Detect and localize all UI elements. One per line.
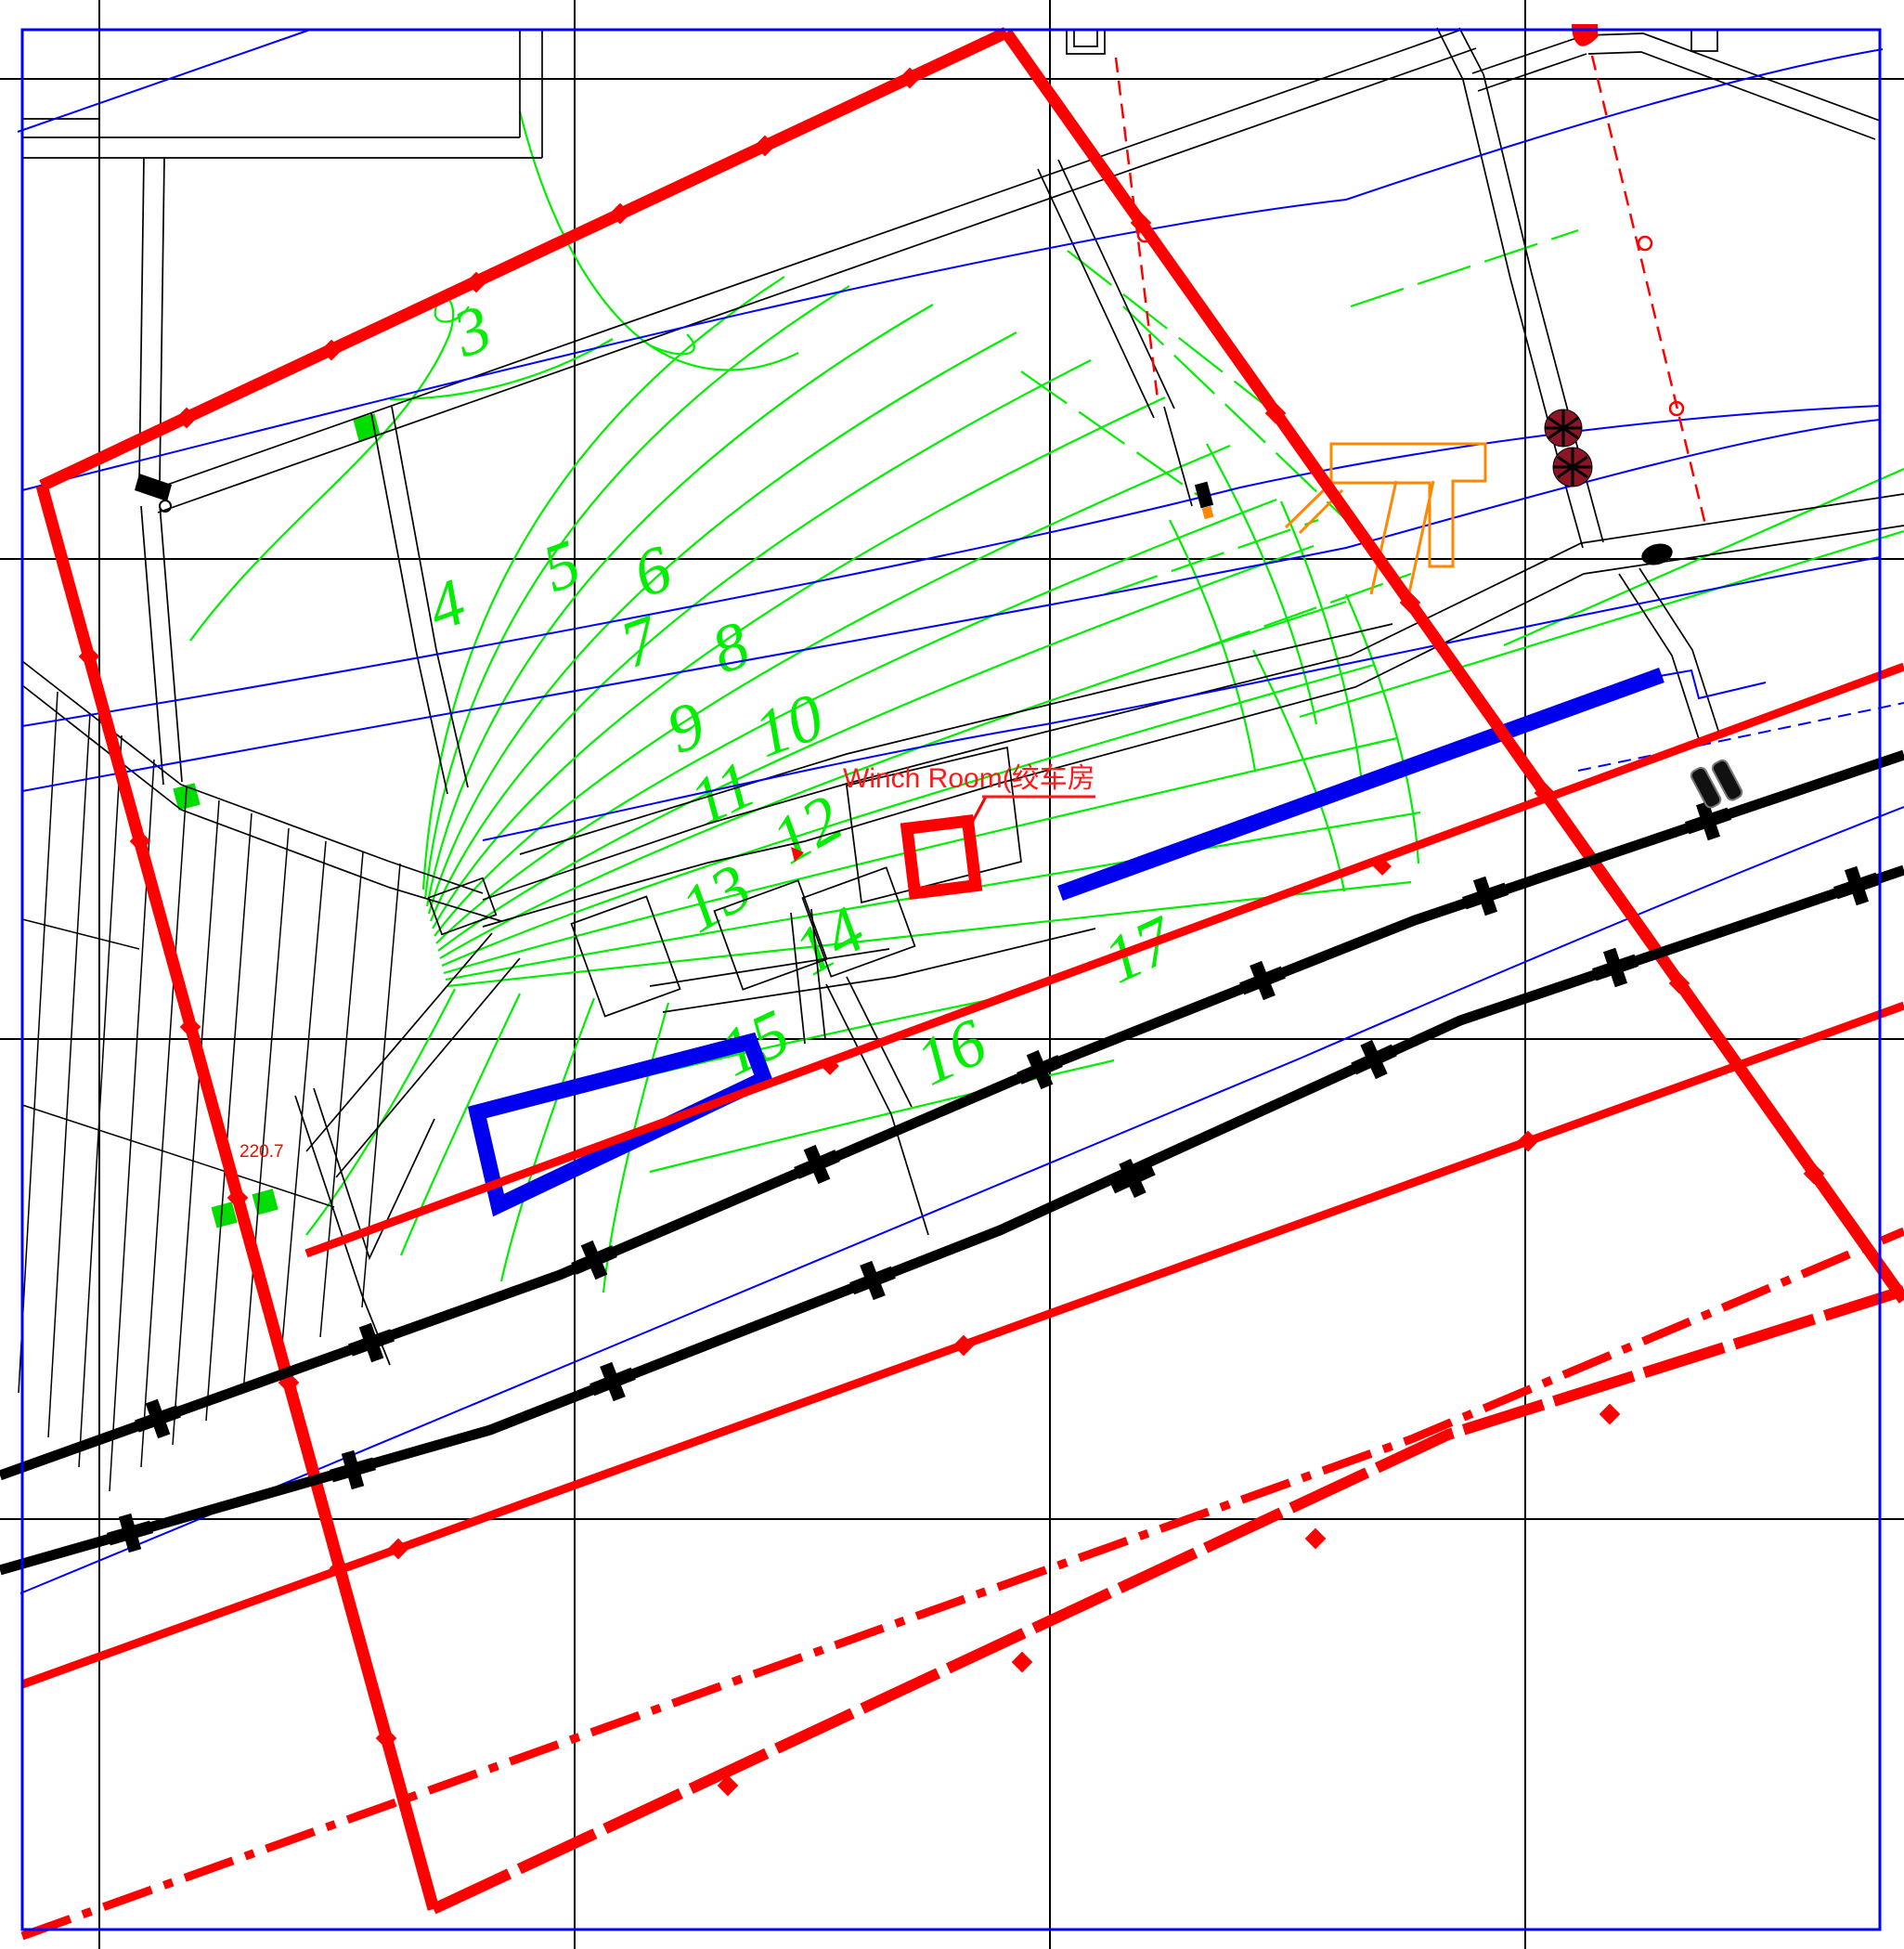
svg-text:220.7: 220.7 (240, 1142, 284, 1162)
svg-text:Winch Room(绞车房: Winch Room(绞车房 (843, 763, 1095, 794)
